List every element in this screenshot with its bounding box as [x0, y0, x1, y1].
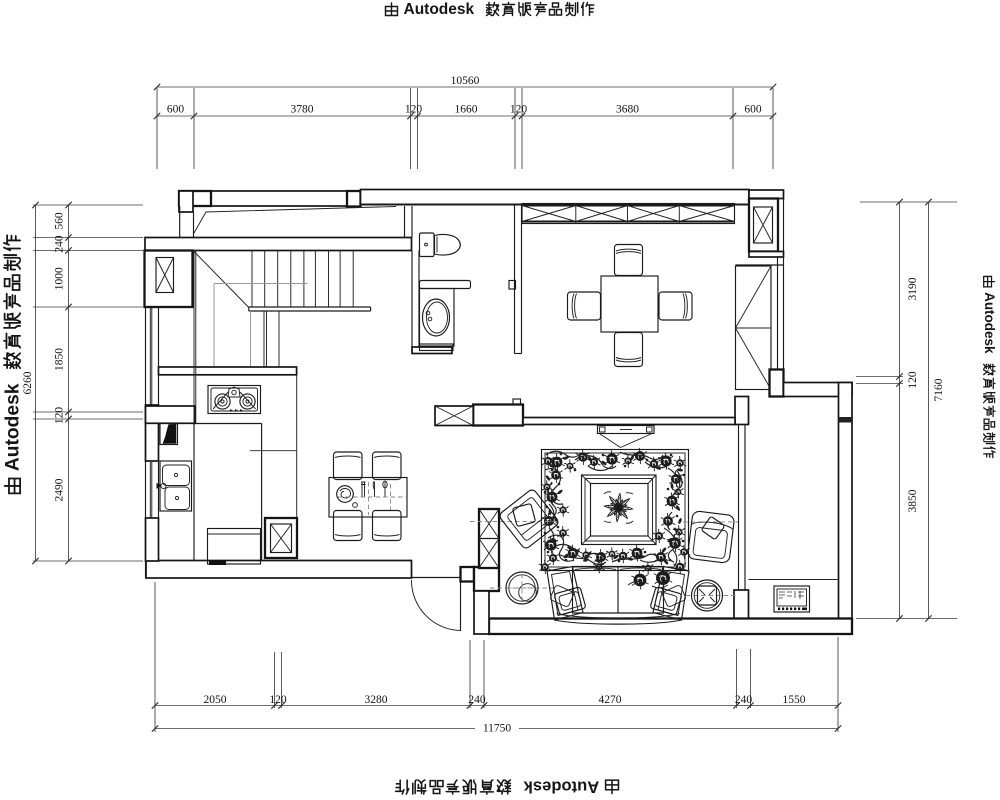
svg-text:3780: 3780 — [291, 104, 314, 116]
svg-text:240: 240 — [735, 694, 753, 706]
svg-text:240: 240 — [468, 694, 486, 706]
svg-text:560: 560 — [54, 212, 66, 230]
svg-text:3850: 3850 — [907, 489, 919, 512]
svg-text:600: 600 — [167, 104, 185, 116]
svg-text:10560: 10560 — [451, 75, 480, 87]
svg-text:3280: 3280 — [365, 694, 388, 706]
svg-text:2050: 2050 — [204, 694, 227, 706]
svg-text:7160: 7160 — [933, 378, 945, 401]
svg-text:3680: 3680 — [616, 104, 639, 116]
svg-text:1000: 1000 — [54, 267, 66, 290]
svg-text:240: 240 — [54, 235, 66, 253]
svg-text:11750: 11750 — [483, 723, 512, 735]
svg-text:120: 120 — [269, 694, 287, 706]
svg-text:600: 600 — [744, 104, 762, 116]
svg-text:1550: 1550 — [783, 694, 806, 706]
svg-text:1850: 1850 — [54, 348, 66, 371]
svg-text:1660: 1660 — [455, 104, 478, 116]
svg-text:2490: 2490 — [54, 478, 66, 501]
svg-text:120: 120 — [510, 104, 528, 116]
svg-text:120: 120 — [54, 407, 66, 425]
svg-text:120: 120 — [907, 371, 919, 389]
svg-text:120: 120 — [405, 104, 423, 116]
svg-text:3190: 3190 — [907, 277, 919, 300]
svg-text:4270: 4270 — [599, 694, 622, 706]
svg-text:6260: 6260 — [22, 371, 34, 394]
